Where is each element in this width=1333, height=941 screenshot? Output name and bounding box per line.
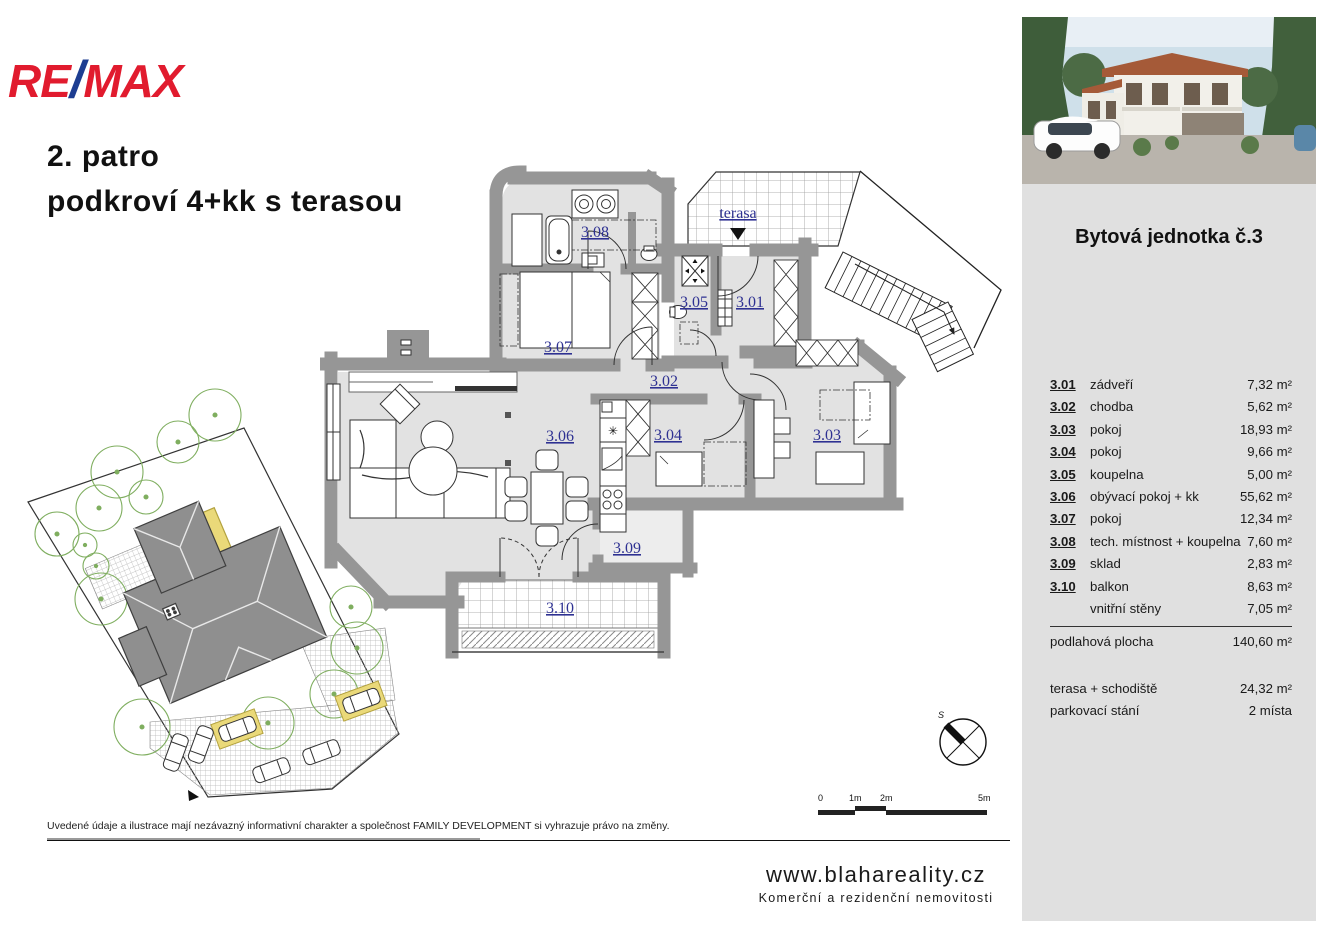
table-row: 3.08tech. místnost + koupelna7,60 m² xyxy=(1050,531,1292,553)
dining-table xyxy=(531,472,563,524)
table-row: vnitřní stěny7,05 m² xyxy=(1050,598,1292,620)
bed xyxy=(656,452,702,486)
remax-logo: RE/MAX xyxy=(8,50,183,110)
scale-1m: 1m xyxy=(849,793,862,803)
label-306: 3.06 xyxy=(546,428,574,445)
room-table: 3.01zádveří7,32 m² 3.02chodba5,62 m² 3.0… xyxy=(1050,374,1292,723)
blue-car xyxy=(1294,125,1316,151)
table-row: 3.09sklad2,83 m² xyxy=(1050,553,1292,575)
scale-and-compass: S 0 1m 2m 5m xyxy=(800,700,1020,830)
table-row: 3.01zádveří7,32 m² xyxy=(1050,374,1292,396)
washer-box xyxy=(572,190,618,218)
table-extra-row: terasa + schodiště24,32 m² xyxy=(1050,678,1292,700)
table-extra-row: parkovací stání2 místa xyxy=(1050,700,1292,722)
cooktop-star-icon: ✳ xyxy=(608,424,618,438)
agency-website-link[interactable]: www.blahareality.cz xyxy=(700,862,1052,888)
house-photo xyxy=(1022,17,1316,184)
sink xyxy=(582,253,604,267)
table-row: 3.10balkon8,63 m² xyxy=(1050,576,1292,598)
chair xyxy=(566,501,588,521)
bed xyxy=(520,272,610,348)
label-303: 3.03 xyxy=(813,427,841,444)
chair xyxy=(536,526,558,546)
table-row: 3.02chodba5,62 m² xyxy=(1050,396,1292,418)
label-307: 3.07 xyxy=(544,339,572,356)
shower xyxy=(512,214,542,266)
logo-max: MAX xyxy=(83,55,182,107)
scale-0: 0 xyxy=(818,793,823,803)
table-row: 3.03pokoj18,93 m² xyxy=(1050,419,1292,441)
label-309: 3.09 xyxy=(613,540,641,557)
scale-5m: 5m xyxy=(978,793,991,803)
label-302: 3.02 xyxy=(650,373,678,390)
terrace-area xyxy=(688,172,860,246)
divider-black xyxy=(47,840,1010,841)
label-308: 3.08 xyxy=(581,224,609,241)
chair xyxy=(536,450,558,470)
wardrobe-301 xyxy=(774,260,798,346)
desk xyxy=(754,400,774,478)
label-terasa: terasa xyxy=(719,205,756,222)
disclaimer-text: Uvedené údaje a ilustrace mají nezávazný… xyxy=(47,820,670,832)
scale-2m: 2m xyxy=(880,793,893,803)
agency-tagline: Komerční a rezidenční nemovitosti xyxy=(700,891,1052,905)
compass-north-label: S xyxy=(938,710,944,720)
bed xyxy=(854,382,890,444)
logo-slash-icon: / xyxy=(70,51,83,109)
scale-bar: 0 1m 2m 5m xyxy=(818,793,991,815)
chair xyxy=(505,477,527,497)
bed xyxy=(816,452,864,484)
logo-re: RE xyxy=(8,55,70,107)
wardrobe-303 xyxy=(796,340,858,366)
table-row: 3.04pokoj9,66 m² xyxy=(1050,441,1292,463)
north-triangle-icon xyxy=(188,790,199,801)
label-304: 3.04 xyxy=(654,427,682,444)
table-row: 3.05koupelna5,00 m² xyxy=(1050,464,1292,486)
unit-title: Bytová jednotka č.3 xyxy=(1022,226,1316,249)
table-row: 3.07pokoj12,34 m² xyxy=(1050,508,1292,530)
label-310: 3.10 xyxy=(546,600,574,617)
compass-icon: S xyxy=(938,710,986,765)
chair xyxy=(566,477,588,497)
unit-sidebar: Bytová jednotka č.3 3.01zádveří7,32 m² 3… xyxy=(1022,17,1316,921)
site-plan xyxy=(0,380,450,820)
label-305: 3.05 xyxy=(680,294,708,311)
agency-footer: www.blahareality.cz Komerční a rezidenčn… xyxy=(700,862,1052,905)
wardrobe-307 xyxy=(632,273,658,359)
kitchen-tall-units xyxy=(626,400,650,456)
table-row: 3.06obývací pokoj + kk55,62 m² xyxy=(1050,486,1292,508)
chair xyxy=(505,501,527,521)
table-total-row: podlahová plocha140,60 m² xyxy=(1050,626,1292,653)
label-301: 3.01 xyxy=(736,294,764,311)
